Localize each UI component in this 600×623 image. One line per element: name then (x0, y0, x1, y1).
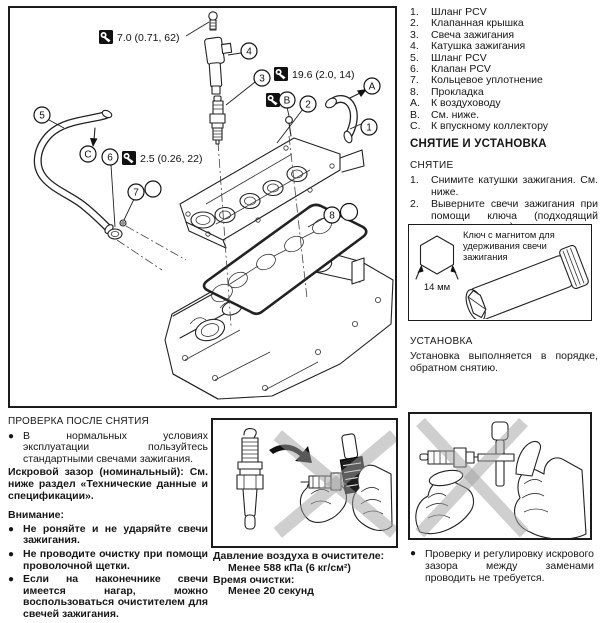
arrow-to-air-duct (350, 89, 367, 98)
callout-7: 7 (128, 184, 144, 200)
attention-bullet: ● Если на наконечнике свечи имеется нага… (8, 574, 208, 620)
svg-text:1: 1 (366, 123, 372, 134)
bullet-icon: ● (8, 549, 23, 572)
attention-bullet: ● Не роняйте и не ударяйте свечи зажиган… (8, 524, 208, 547)
subheading-removal: СНЯТИЕ (410, 160, 598, 171)
callout-4: 4 (241, 43, 257, 59)
callout-1: 1 (361, 119, 377, 135)
svg-text:C: C (84, 150, 91, 161)
callout-C: C (80, 146, 96, 162)
part-number: A. (410, 98, 431, 109)
part-number: C. (410, 121, 431, 132)
cleaner-spec-line: Менее 588 кПа (6 кг/см²) (213, 563, 399, 575)
gap-adjust-prohibited-figure (408, 412, 592, 540)
spark-gap-note: Искровой зазор (номинальный): См. ниже р… (8, 467, 208, 502)
pcv-valve-grommet-drawing (108, 229, 122, 239)
non-reusable-icon (341, 204, 358, 221)
non-reusable-icon (145, 181, 161, 197)
cleaner-spec-line: Менее 20 секунд (213, 586, 399, 598)
parts-list-row: 4.Катушка зажигания (410, 41, 598, 52)
callout-B: B (279, 92, 295, 108)
hex-size-drawing: 14 мм (416, 236, 458, 293)
hex-size-label: 14 мм (424, 282, 450, 293)
parts-list: 1.Шланг PCV 2.Клапанная крышка 3.Свеча з… (410, 7, 598, 132)
parts-list-row: A.К воздуховоду (410, 98, 598, 109)
callout-6: 6 (102, 149, 118, 165)
callout-2: 2 (300, 96, 316, 112)
bullet-icon: ● (8, 574, 23, 620)
callout-A: A (364, 78, 380, 94)
svg-text:8: 8 (329, 211, 335, 222)
ignition-coil-drawing (204, 37, 231, 94)
svg-text:6: 6 (107, 153, 113, 164)
step-number: 1. (410, 175, 431, 198)
coil-bolt-drawing (209, 12, 217, 30)
cleaner-spec: Давление воздуха в очистителе: Менее 588… (213, 551, 399, 598)
exploded-diagram: 7.0 (0.71, 62) 19.6 (2.0, 14) 2.5 (0.26,… (10, 8, 395, 406)
centerline-grommet (117, 240, 162, 270)
svg-text:A: A (369, 82, 376, 93)
cleaning-prohibited-drawing (213, 420, 396, 546)
gap-check-note: ● Проверку и регулировку искрового зазор… (410, 548, 594, 586)
inspection-heading: ПРОВЕРКА ПОСЛЕ СНЯТИЯ (8, 416, 208, 428)
callout-3: 3 (254, 70, 270, 86)
torque-spec-pcv-valve: 2.5 (0.26, 22) (140, 153, 202, 165)
svg-text:7: 7 (133, 188, 139, 199)
installation-section: УСТАНОВКА Установка выполняется в порядк… (410, 336, 598, 374)
part-label: К воздуховоду (431, 98, 598, 109)
centerline-oring (126, 226, 186, 260)
svg-text:3: 3 (259, 74, 265, 85)
part-label: К впускному коллектору (431, 121, 598, 132)
inspection-bullet-text: В нормальных условиях эксплуатации польз… (23, 431, 208, 466)
spark-plug-socket-figure: 14 мм Ключ с магнитом для удерживания св… (408, 224, 592, 321)
torque-wrench-icon (274, 67, 288, 81)
removal-step: 1.Снимите катушки зажигания. См. ниже. (410, 175, 598, 198)
part-label: Катушка зажигания (431, 41, 598, 52)
callout-5: 5 (34, 107, 50, 123)
right-hand-drawing (515, 441, 586, 538)
svg-text:2: 2 (305, 100, 311, 111)
parts-list-row: C.К впускному коллектору (410, 121, 598, 132)
installation-text: Установка выполняется в порядке, обратно… (410, 351, 598, 374)
inspection-section: ПРОВЕРКА ПОСЛЕ СНЯТИЯ ● В нормальных усл… (8, 416, 208, 623)
subheading-installation: УСТАНОВКА (410, 336, 598, 347)
spark-plug-cleaning-figure (211, 418, 398, 548)
step-text: Снимите катушки зажигания. См. ниже. (431, 175, 598, 198)
svg-text:4: 4 (246, 47, 252, 58)
torque-spec-coil: 7.0 (0.71, 62) (117, 32, 179, 44)
attention-bullet-text: Не проводите очистку при помощи проволоч… (23, 549, 208, 572)
spark-plug-upside-down-drawing (237, 429, 263, 529)
bullet-icon: ● (410, 548, 425, 584)
right-column: 1.Шланг PCV 2.Клапанная крышка 3.Свеча з… (410, 7, 598, 234)
bullet-icon: ● (8, 431, 23, 466)
exploded-diagram-figure: 7.0 (0.71, 62) 19.6 (2.0, 14) 2.5 (0.26,… (8, 6, 397, 408)
section-title-removal-installation: СНЯТИЕ И УСТАНОВКА (410, 139, 598, 150)
gap-adjust-drawing (410, 414, 590, 538)
socket-caption: Ключ с магнитом для удерживания свечи за… (463, 230, 587, 263)
gap-check-note-text: Проверку и регулировку искрового зазора … (425, 548, 594, 584)
attention-bullet: ● Не проводите очистку при помощи провол… (8, 549, 208, 572)
attention-bullet-text: Если на наконечнике свечи имеется нагар,… (23, 574, 208, 620)
svg-text:5: 5 (39, 111, 45, 122)
o-ring-drawing (120, 220, 126, 226)
torque-wrench-icon (99, 30, 113, 44)
cover-bolt-drawing (286, 117, 293, 136)
attention-heading: Внимание: (8, 510, 208, 522)
svg-text:B: B (284, 96, 291, 107)
callout-8: 8 (324, 207, 340, 223)
pcv-hose-1-drawing (324, 96, 354, 144)
torque-wrench-icon (122, 151, 136, 165)
torque-wrench-icon (266, 93, 280, 107)
attention-bullet-text: Не роняйте и не ударяйте свечи зажигания… (23, 524, 208, 547)
part-number: 4. (410, 41, 431, 52)
arrow-to-intake (90, 128, 98, 147)
pcv-hose-5-drawing (38, 109, 115, 235)
spark-plug-drawing (210, 96, 225, 144)
bullet-icon: ● (8, 524, 23, 547)
torque-spec-spark-plug: 19.6 (2.0, 14) (292, 69, 354, 81)
inspection-bullet: ● В нормальных условиях эксплуатации пол… (8, 431, 208, 466)
